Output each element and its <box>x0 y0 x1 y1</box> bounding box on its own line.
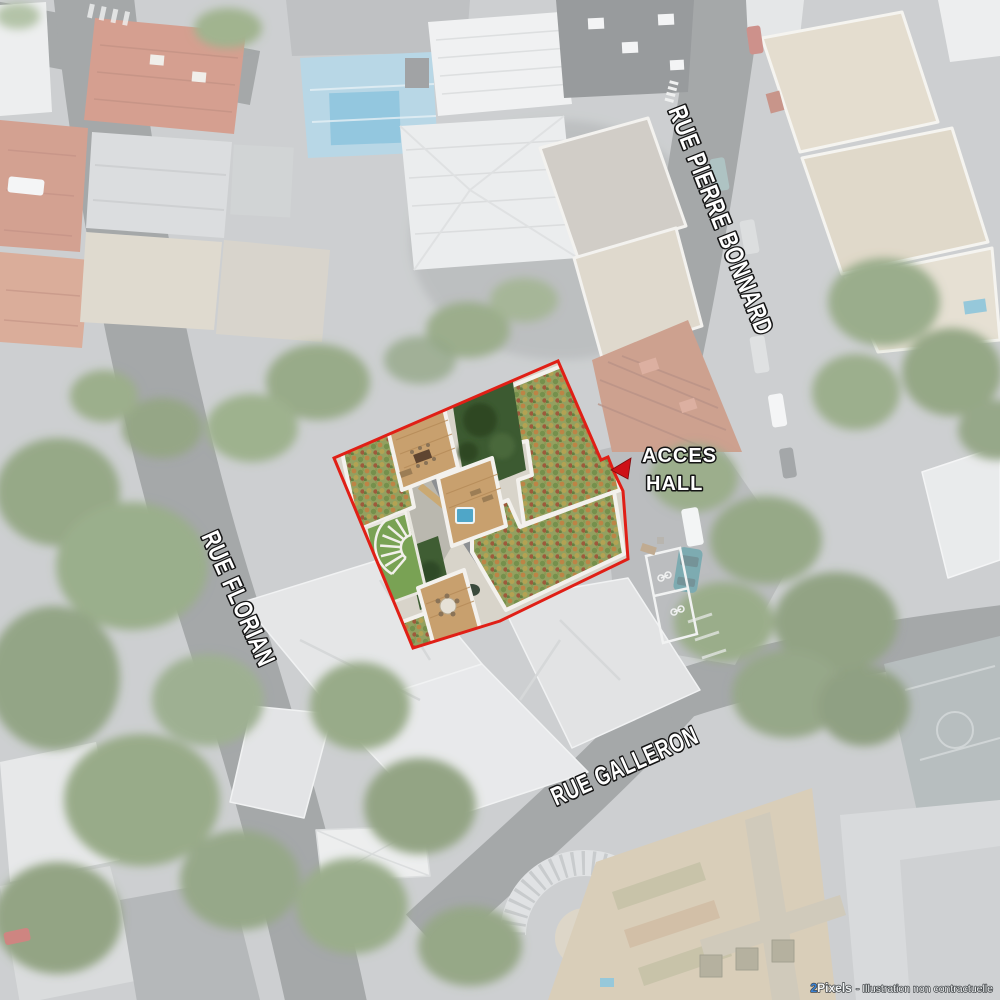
watermark-note: - Illustration non contractuelle <box>856 983 993 995</box>
aerial-basemap: ACCES HALL RUE PIERRE BONNARD RUE FLORIA… <box>0 0 1000 1000</box>
watermark-brand-name: Pixels <box>817 981 852 995</box>
access-label-line2: HALL <box>646 473 703 495</box>
aerial-site-plan: ACCES HALL RUE PIERRE BONNARD RUE FLORIA… <box>0 0 1000 1000</box>
plunge-pool <box>456 508 474 523</box>
watermark: 2Pixels- Illustration non contractuelle <box>810 981 993 995</box>
access-label-line1: ACCES <box>642 445 717 467</box>
